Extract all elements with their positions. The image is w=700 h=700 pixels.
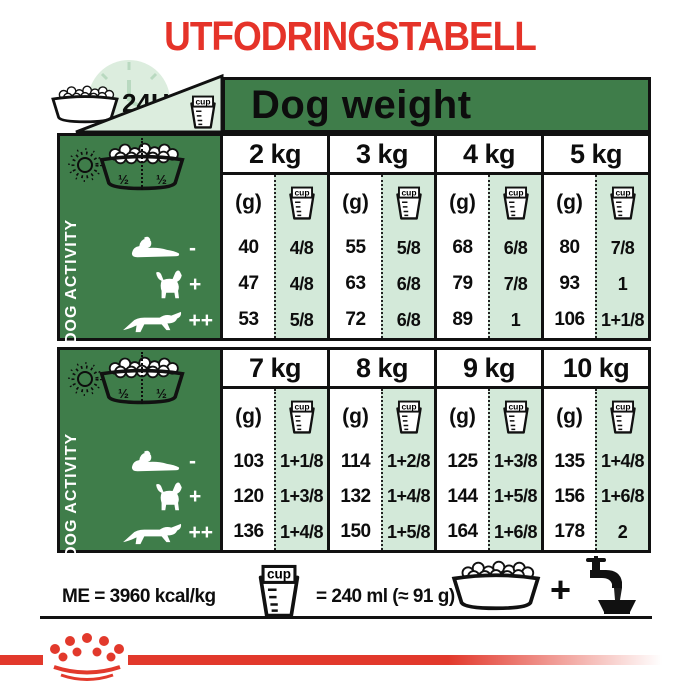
page-title: UTFODRINGSTABELL [0, 14, 700, 60]
grams-column: (g)404753 [223, 175, 274, 338]
moon-icon [196, 360, 218, 392]
measuring-cup-icon: cup [285, 182, 319, 224]
cups-header: cup [276, 175, 327, 230]
cups-header: cup [383, 389, 434, 444]
weight-header-cell: 9 kg [437, 350, 541, 389]
activity-marker: + [189, 486, 213, 507]
weight-subarea: (g)135156178 cup 1+4/81+6/82 [544, 389, 648, 550]
grams-header: (g) [437, 175, 488, 230]
grams-column: (g)114132150 [330, 389, 381, 550]
weight-header-cell: 4 kg [437, 136, 541, 175]
half-portion-right: ½ [156, 172, 167, 187]
cups-column: cup 1+2/81+4/81+5/8 [381, 389, 434, 550]
weight-header-cell: 10 kg [544, 350, 648, 389]
dog-activity-panel: ½ ½ DOG ACTIVITY - + [60, 136, 223, 338]
measuring-cup-icon: cup [186, 92, 220, 132]
cups-value: 6/8 [383, 302, 434, 338]
cups-value: 1 [597, 266, 648, 302]
crown-logo [45, 632, 129, 682]
weight-header-cell: 2 kg [223, 136, 327, 175]
cups-value: 1+1/8 [276, 444, 327, 479]
cup-icon-label: cup [401, 187, 416, 197]
grams-value: 144 [437, 479, 488, 514]
food-bowl-legend-icon [444, 558, 548, 612]
cups-value: 1+4/8 [597, 444, 648, 479]
cup-icon-label: cup [294, 401, 309, 411]
grams-value: 80 [544, 230, 595, 266]
cups-column: cup 1+4/81+6/82 [595, 389, 648, 550]
grams-value: 164 [437, 515, 488, 550]
cups-header: cup [597, 389, 648, 444]
cups-value: 6/8 [383, 266, 434, 302]
grams-value: 135 [544, 444, 595, 479]
weight-subarea: (g)103120136 cup 1+1/81+3/81+4/8 [223, 389, 327, 550]
cups-header: cup [490, 389, 541, 444]
grams-value: 125 [437, 444, 488, 479]
cups-column: cup 6/87/81 [488, 175, 541, 338]
measuring-cup-icon: cup [499, 182, 533, 224]
metabolizable-energy-label: ME = 3960 kcal/kg [62, 586, 216, 608]
activity-row-low: - [60, 230, 220, 266]
weight-subarea: (g)114132150 cup 1+2/81+4/81+5/8 [330, 389, 434, 550]
legend-divider [40, 616, 652, 619]
grams-value: 136 [223, 515, 274, 550]
cups-value: 1+5/8 [383, 515, 434, 550]
grams-value: 120 [223, 479, 274, 514]
cups-value: 4/8 [276, 230, 327, 266]
cups-column: cup 7/811+1/8 [595, 175, 648, 338]
cups-header: cup [490, 175, 541, 230]
cup-icon-label: cup [508, 401, 523, 411]
cup-icon-label: cup [195, 96, 210, 106]
measuring-cup-icon: cup [606, 182, 640, 224]
grams-value: 55 [330, 230, 381, 266]
activity-row-medium: + [60, 266, 220, 302]
cups-value: 1+1/8 [597, 302, 648, 338]
weight-column: 5 kg (g)8093106 cup 7/811+1/8 [541, 136, 648, 338]
cups-value: 2 [597, 515, 648, 550]
grams-header: (g) [223, 389, 274, 444]
weight-column: 10 kg (g)135156178 cup 1+4/81+6/82 [541, 350, 648, 550]
cups-value: 1+2/8 [383, 444, 434, 479]
resting-dog-icon [126, 236, 184, 260]
grams-header: (g) [437, 389, 488, 444]
grams-value: 93 [544, 266, 595, 302]
grams-column: (g)8093106 [544, 175, 595, 338]
weight-subarea: (g)687989 cup 6/87/81 [437, 175, 541, 338]
activity-rows: - + ++ [60, 230, 220, 338]
activity-marker: + [189, 274, 213, 295]
weight-subarea: (g)404753 cup 4/84/85/8 [223, 175, 327, 338]
half-portion-left: ½ [118, 172, 129, 187]
cups-value: 1+6/8 [490, 515, 541, 550]
cups-value: 4/8 [276, 266, 327, 302]
cups-value: 1+3/8 [276, 479, 327, 514]
activity-row-low: - [60, 444, 220, 479]
cups-value: 1+6/8 [597, 479, 648, 514]
red-bar-right [128, 655, 662, 665]
weight-subarea: (g)556372 cup 5/86/86/8 [330, 175, 434, 338]
day-night-divider [141, 138, 143, 190]
moon-icon [196, 146, 218, 178]
cups-column: cup 5/86/86/8 [381, 175, 434, 338]
grams-value: 79 [437, 266, 488, 302]
measuring-cup-legend-icon: cup [252, 560, 306, 622]
grams-value: 47 [223, 266, 274, 302]
grams-value: 156 [544, 479, 595, 514]
dog-weight-header: Dog weight [222, 77, 651, 133]
grams-value: 132 [330, 479, 381, 514]
activity-marker: - [189, 238, 213, 259]
grams-value: 89 [437, 302, 488, 338]
weight-column: 3 kg (g)556372 cup 5/86/86/8 [327, 136, 434, 338]
activity-row-high: ++ [60, 515, 220, 550]
grams-header: (g) [223, 175, 274, 230]
measuring-cup-icon: cup [285, 396, 319, 438]
measuring-cup-icon: cup [392, 396, 426, 438]
cup-icon-label: cup [615, 187, 630, 197]
grams-value: 72 [330, 302, 381, 338]
cup-icon-label: cup [508, 187, 523, 197]
weight-column: 2 kg (g)404753 cup 4/84/85/8 [223, 136, 327, 338]
weight-header-cell: 5 kg [544, 136, 648, 175]
grams-header: (g) [330, 389, 381, 444]
cups-column: cup 1+1/81+3/81+4/8 [274, 389, 327, 550]
grams-value: 114 [330, 444, 381, 479]
grams-column: (g)687989 [437, 175, 488, 338]
grams-value: 40 [223, 230, 274, 266]
cups-value: 1+3/8 [490, 444, 541, 479]
grams-header: (g) [544, 389, 595, 444]
cups-header: cup [383, 175, 434, 230]
weight-header-cell: 3 kg [330, 136, 434, 175]
weight-section: ½ ½ DOG ACTIVITY - + [57, 133, 651, 341]
running-dog-icon [121, 519, 183, 546]
dog-activity-panel: ½ ½ DOG ACTIVITY - + [60, 350, 223, 550]
grams-column: (g)556372 [330, 175, 381, 338]
grams-value: 63 [330, 266, 381, 302]
cup-icon-label: cup [267, 567, 291, 582]
activity-marker: ++ [188, 310, 213, 331]
cup-volume-label: = 240 ml (≈ 91 g) [316, 586, 455, 608]
measuring-cup-icon: cup [499, 396, 533, 438]
weight-header-cell: 8 kg [330, 350, 434, 389]
day-night-divider [141, 352, 143, 404]
plus-sign: + [550, 572, 571, 608]
cup-icon-label: cup [294, 187, 309, 197]
grams-value: 106 [544, 302, 595, 338]
weight-header-cell: 7 kg [223, 350, 327, 389]
cups-value: 6/8 [490, 230, 541, 266]
activity-row-high: ++ [60, 302, 220, 338]
standing-dog-icon [152, 480, 184, 513]
activity-rows: - + ++ [60, 444, 220, 550]
activity-row-medium: + [60, 479, 220, 514]
weight-column: 9 kg (g)125144164 cup 1+3/81+5/81+6/8 [434, 350, 541, 550]
cups-value: 5/8 [276, 302, 327, 338]
weight-grid: 7 kg (g)103120136 cup 1+1/81+3/81+4/8 8 … [223, 350, 648, 550]
half-portion-left: ½ [118, 386, 129, 401]
cups-value: 1+5/8 [490, 479, 541, 514]
activity-marker: - [189, 451, 213, 472]
cups-header: cup [276, 389, 327, 444]
grams-column: (g)125144164 [437, 389, 488, 550]
cups-value: 7/8 [597, 230, 648, 266]
weight-column: 7 kg (g)103120136 cup 1+1/81+3/81+4/8 [223, 350, 327, 550]
half-portion-right: ½ [156, 386, 167, 401]
weight-column: 4 kg (g)687989 cup 6/87/81 [434, 136, 541, 338]
grams-value: 68 [437, 230, 488, 266]
cup-icon-label: cup [401, 401, 416, 411]
running-dog-icon [121, 307, 183, 334]
measuring-cup-icon: cup [392, 182, 426, 224]
grams-value: 150 [330, 515, 381, 550]
cups-column: cup 4/84/85/8 [274, 175, 327, 338]
resting-dog-icon [126, 450, 184, 474]
weight-column: 8 kg (g)114132150 cup 1+2/81+4/81+5/8 [327, 350, 434, 550]
cups-value: 7/8 [490, 266, 541, 302]
standing-dog-icon [152, 268, 184, 301]
grams-header: (g) [330, 175, 381, 230]
cups-value: 1 [490, 302, 541, 338]
cup-icon-label: cup [615, 401, 630, 411]
weight-subarea: (g)125144164 cup 1+3/81+5/81+6/8 [437, 389, 541, 550]
grams-value: 103 [223, 444, 274, 479]
weight-grid: 2 kg (g)404753 cup 4/84/85/8 3 kg (g)556… [223, 136, 648, 338]
grams-column: (g)135156178 [544, 389, 595, 550]
measuring-cup-icon: cup [606, 396, 640, 438]
grams-header: (g) [544, 175, 595, 230]
red-bar-left [0, 655, 43, 665]
weight-subarea: (g)8093106 cup 7/811+1/8 [544, 175, 648, 338]
cups-value: 5/8 [383, 230, 434, 266]
cups-value: 1+4/8 [276, 515, 327, 550]
cups-column: cup 1+3/81+5/81+6/8 [488, 389, 541, 550]
cups-header: cup [597, 175, 648, 230]
activity-marker: ++ [188, 522, 213, 543]
grams-value: 178 [544, 515, 595, 550]
cups-value: 1+4/8 [383, 479, 434, 514]
grams-value: 53 [223, 302, 274, 338]
weight-section: ½ ½ DOG ACTIVITY - + [57, 347, 651, 553]
water-tap-icon [578, 556, 644, 614]
feeding-table-page: UTFODRINGSTABELL 24H cup Dog weigh [0, 0, 700, 700]
grams-column: (g)103120136 [223, 389, 274, 550]
